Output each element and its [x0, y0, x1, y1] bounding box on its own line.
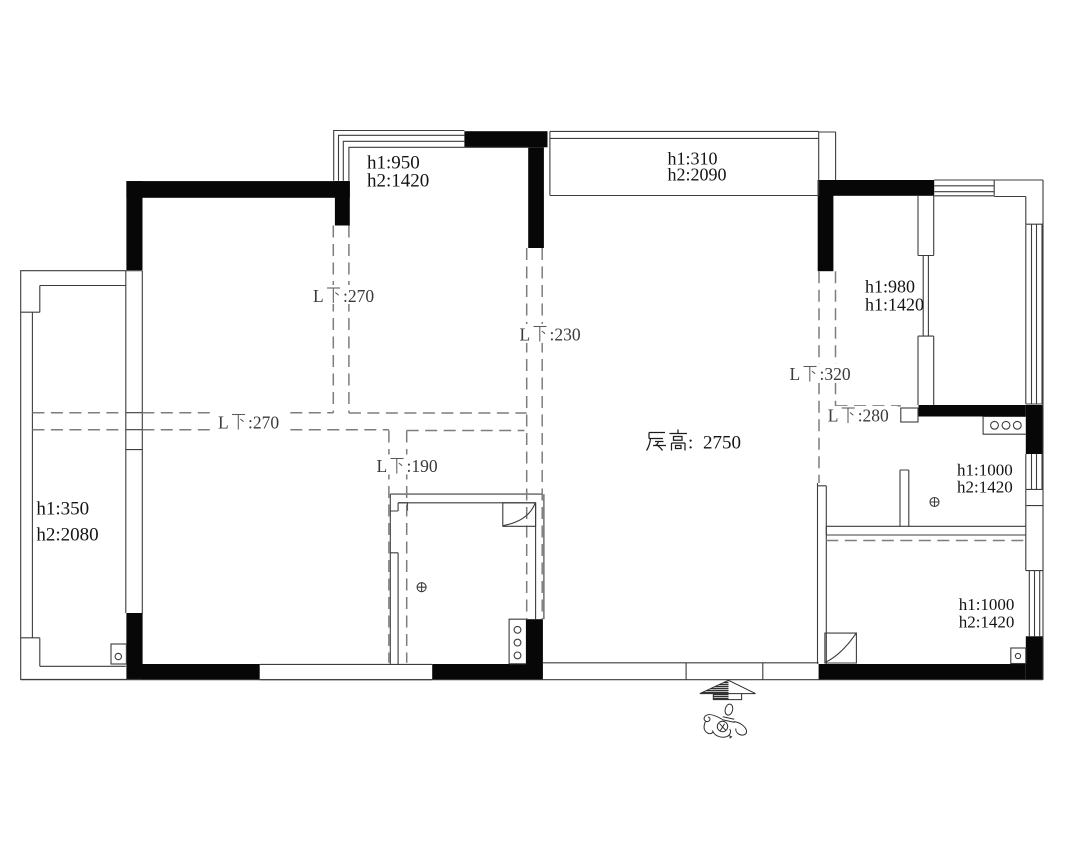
svg-text:L: L [313, 286, 324, 306]
svg-text:2750: 2750 [703, 433, 741, 454]
svg-text::230: :230 [550, 325, 581, 345]
svg-text:L: L [520, 325, 531, 345]
svg-text:L: L [377, 456, 388, 476]
svg-text::320: :320 [820, 364, 851, 384]
svg-text::: : [688, 433, 693, 454]
svg-text:L: L [828, 406, 839, 426]
svg-text:L: L [790, 364, 801, 384]
svg-text:h2:1420: h2:1420 [957, 478, 1013, 497]
svg-text:h2:2090: h2:2090 [668, 165, 727, 185]
svg-text:h1:1000: h1:1000 [959, 595, 1015, 614]
svg-text:h1:1420: h1:1420 [865, 295, 924, 315]
svg-text:h1:350: h1:350 [36, 499, 89, 520]
svg-text:L: L [218, 413, 229, 433]
svg-text::190: :190 [407, 456, 438, 476]
svg-text::270: :270 [343, 286, 374, 306]
svg-text:h2:1420: h2:1420 [367, 171, 429, 192]
svg-text:h2:1420: h2:1420 [959, 613, 1015, 632]
svg-text::280: :280 [858, 406, 889, 426]
svg-text::270: :270 [248, 413, 279, 433]
svg-text:h1:980: h1:980 [865, 277, 915, 297]
svg-text:h2:2080: h2:2080 [36, 525, 98, 546]
